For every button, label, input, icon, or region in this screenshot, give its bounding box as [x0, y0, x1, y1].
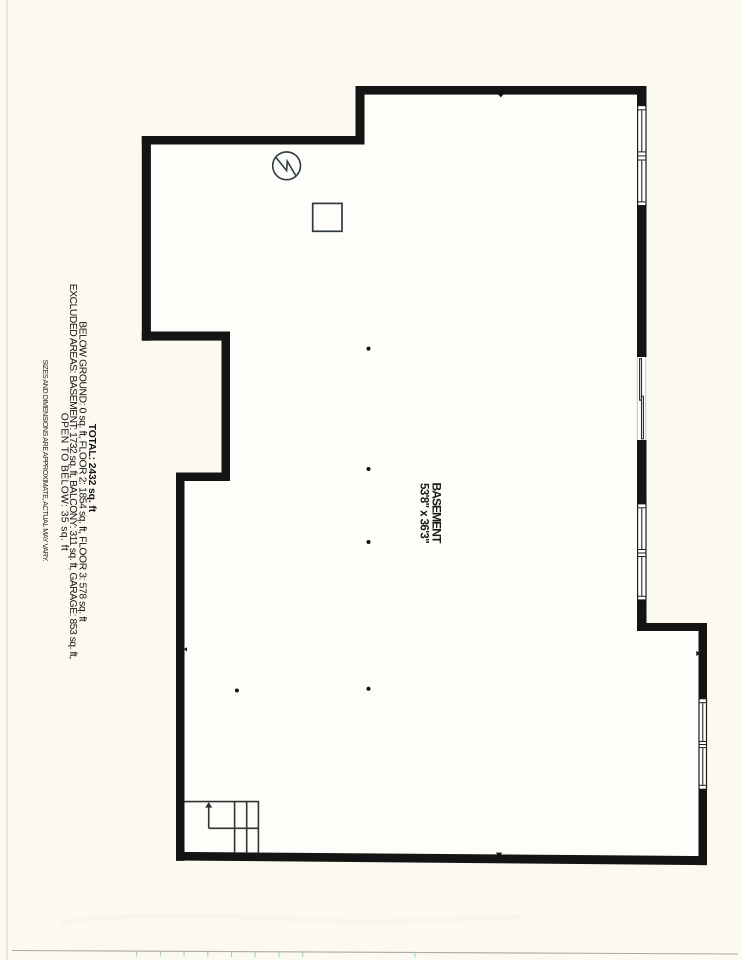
svg-text:BASEMENT: BASEMENT	[430, 483, 444, 544]
svg-text:SIZES AND DIMENSIONS ARE APPRO: SIZES AND DIMENSIONS ARE APPROXIMATE, AC…	[41, 360, 50, 562]
svg-text:53'8" x 36'3": 53'8" x 36'3"	[417, 483, 429, 544]
svg-text:OPEN TO BELOW: 35 sq. ft: OPEN TO BELOW: 35 sq. ft	[58, 413, 69, 551]
